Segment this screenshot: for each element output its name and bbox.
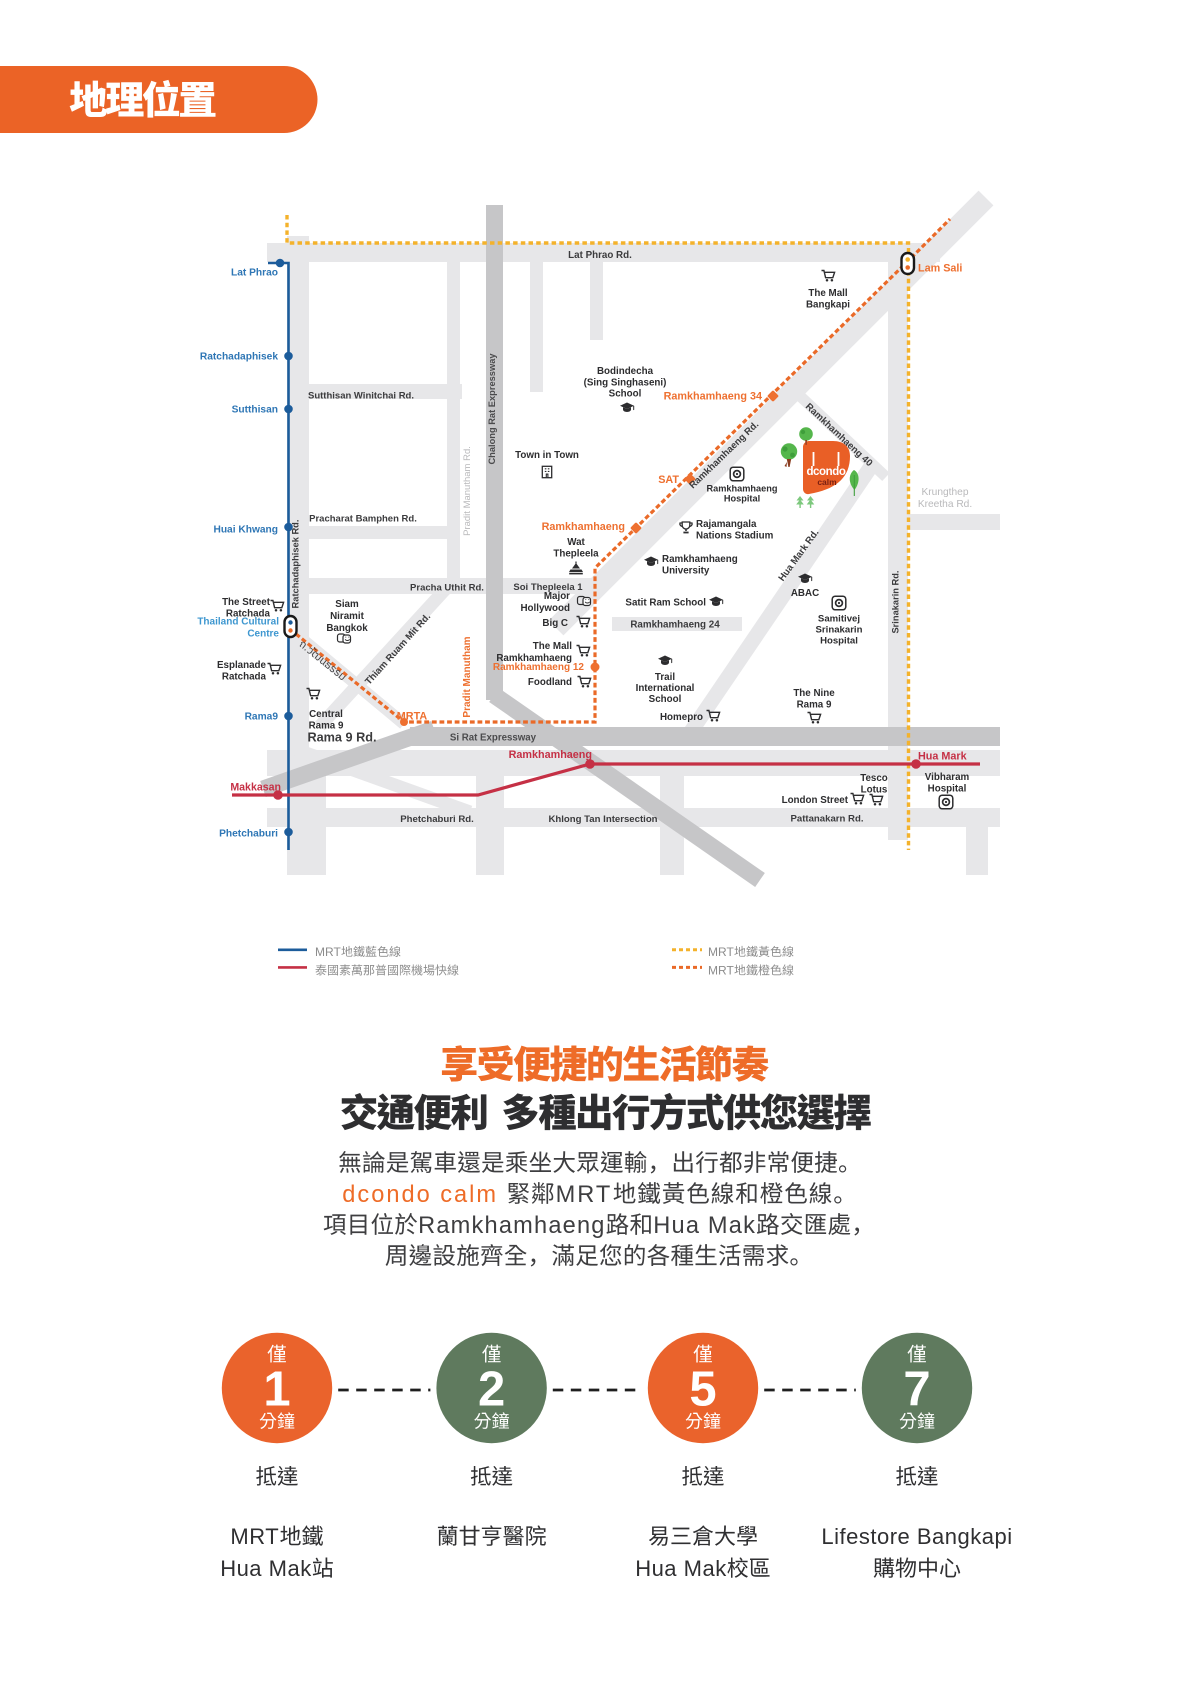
svg-text:London Street: London Street — [782, 795, 849, 806]
svg-text:Khlong Tan Intersection: Khlong Tan Intersection — [548, 814, 657, 825]
svg-text:Centre: Centre — [247, 629, 279, 640]
svg-text:Phetchaburi Rd.: Phetchaburi Rd. — [400, 814, 474, 825]
svg-text:Lotus: Lotus — [861, 784, 888, 795]
svg-text:Hollywood: Hollywood — [520, 603, 570, 614]
svg-text:Srinakarin Rd.: Srinakarin Rd. — [891, 570, 901, 633]
svg-text:Bangkok: Bangkok — [326, 623, 368, 634]
svg-text:School: School — [609, 389, 642, 400]
svg-text:Rama 9: Rama 9 — [797, 699, 832, 710]
svg-text:Hospital: Hospital — [724, 494, 760, 504]
svg-text:Ramkhamhaeng: Ramkhamhaeng — [509, 749, 592, 761]
svg-text:Ramkhamhaeng: Ramkhamhaeng — [542, 521, 625, 533]
svg-text:Bangkapi: Bangkapi — [806, 299, 850, 310]
svg-text:Srinakarin: Srinakarin — [816, 625, 863, 636]
svg-text:Ratchada: Ratchada — [226, 608, 271, 619]
svg-text:Phetchaburi: Phetchaburi — [219, 829, 278, 840]
svg-text:Lat Phrao: Lat Phrao — [231, 268, 278, 279]
svg-text:Satit Ram School: Satit Ram School — [625, 598, 706, 609]
svg-text:Lifestore Bangkapi: Lifestore Bangkapi — [821, 1524, 1012, 1549]
svg-text:Sutthisan: Sutthisan — [232, 405, 278, 416]
svg-text:Hua Mak: Hua Mak — [220, 1556, 312, 1581]
svg-text:Siam: Siam — [335, 599, 359, 610]
svg-text:Niramit: Niramit — [330, 611, 364, 622]
svg-text:Ramkhamhaeng: Ramkhamhaeng — [662, 554, 738, 565]
svg-text:(Sing Singhaseni): (Sing Singhaseni) — [584, 377, 667, 388]
svg-text:Rama 9: Rama 9 — [309, 720, 344, 731]
svg-text:MRT: MRT — [708, 945, 734, 959]
svg-text:ABAC: ABAC — [791, 588, 819, 599]
svg-text:The Mall: The Mall — [533, 641, 572, 652]
svg-text:MRTA: MRTA — [397, 711, 428, 723]
svg-text:Town in Town: Town in Town — [515, 450, 579, 461]
svg-text:Wat: Wat — [567, 537, 585, 548]
svg-text:Bodindecha: Bodindecha — [597, 366, 654, 377]
svg-text:Esplanade: Esplanade — [217, 660, 267, 671]
svg-text:MRT: MRT — [315, 945, 341, 959]
svg-text:2: 2 — [478, 1363, 505, 1417]
svg-text:Pradit Manutham Rd.: Pradit Manutham Rd. — [462, 446, 473, 536]
svg-text:Huai Khwang: Huai Khwang — [213, 525, 278, 536]
svg-text:Ramkhamhaeng 24: Ramkhamhaeng 24 — [630, 620, 720, 631]
svg-text:Big C: Big C — [542, 618, 568, 629]
svg-text:MRT: MRT — [556, 1182, 613, 1208]
svg-text:Pattanakarn Rd.: Pattanakarn Rd. — [790, 814, 863, 825]
svg-text:Hua Mak: Hua Mak — [653, 1213, 756, 1239]
svg-text:Chalong Rat Expressway: Chalong Rat Expressway — [487, 353, 497, 465]
svg-text:Hospital: Hospital — [928, 783, 967, 794]
svg-text:Sutthisan Winitchai Rd.: Sutthisan Winitchai Rd. — [308, 391, 414, 402]
svg-text:International: International — [636, 683, 695, 694]
svg-text:Ramkhamhaeng: Ramkhamhaeng — [418, 1213, 606, 1239]
svg-text:Ratchadaphisek: Ratchadaphisek — [200, 352, 278, 363]
svg-text:The Street: The Street — [222, 597, 271, 608]
svg-text:University: University — [662, 565, 710, 576]
svg-text:Si Rat Expressway: Si Rat Expressway — [450, 733, 537, 744]
svg-text:Ramkhamhaeng: Ramkhamhaeng — [707, 484, 778, 494]
svg-text:Pracha Uthit Rd.: Pracha Uthit Rd. — [410, 583, 484, 594]
svg-text:dcondo calm: dcondo calm — [342, 1182, 498, 1208]
svg-text:Homepro: Homepro — [660, 712, 703, 723]
svg-text:MRT: MRT — [708, 964, 734, 978]
svg-text:School: School — [649, 694, 682, 705]
svg-text:Central: Central — [309, 709, 343, 720]
svg-text:Ramkhamhaeng: Ramkhamhaeng — [496, 653, 572, 664]
svg-text:Hua Mark: Hua Mark — [918, 751, 968, 763]
svg-text:Ramkhamhaeng 34: Ramkhamhaeng 34 — [664, 391, 762, 403]
svg-text:Major: Major — [544, 591, 570, 602]
svg-text:7: 7 — [903, 1363, 930, 1417]
svg-text:Kreetha Rd.: Kreetha Rd. — [918, 499, 972, 510]
svg-text:Vibharam: Vibharam — [925, 772, 970, 783]
svg-text:Rajamangala: Rajamangala — [696, 519, 757, 530]
svg-text:Samitivej: Samitivej — [818, 614, 860, 625]
svg-text:Makkasan: Makkasan — [230, 782, 281, 794]
svg-text:Nations Stadium: Nations Stadium — [696, 530, 774, 541]
svg-text:Rama 9 Rd.: Rama 9 Rd. — [307, 731, 376, 745]
svg-text:Krungthep: Krungthep — [921, 487, 968, 498]
svg-text:MRT: MRT — [230, 1524, 279, 1549]
svg-text:Trail: Trail — [655, 672, 675, 683]
svg-text:SAT: SAT — [658, 474, 679, 486]
svg-text:calm: calm — [817, 477, 837, 487]
svg-text:Lat Phrao Rd.: Lat Phrao Rd. — [568, 250, 632, 261]
svg-text:Thepleela: Thepleela — [553, 548, 599, 559]
svg-text:Pracharat Bamphen Rd.: Pracharat Bamphen Rd. — [309, 514, 417, 525]
svg-text:Ratchadaphisek Rd.: Ratchadaphisek Rd. — [291, 520, 301, 609]
svg-text:Pradit Manutham: Pradit Manutham — [462, 636, 473, 717]
svg-text:Hua Mak: Hua Mak — [635, 1556, 727, 1581]
svg-text:1: 1 — [263, 1363, 290, 1417]
svg-text:5: 5 — [689, 1363, 716, 1417]
svg-text:Lam Sali: Lam Sali — [918, 263, 962, 275]
svg-text:Ratchada: Ratchada — [222, 671, 267, 682]
svg-text:The Nine: The Nine — [793, 688, 835, 699]
svg-text:Tesco: Tesco — [860, 773, 888, 784]
svg-text:Rama9: Rama9 — [245, 712, 279, 723]
svg-text:Hospital: Hospital — [820, 636, 858, 647]
svg-text:The Mall: The Mall — [808, 288, 847, 299]
svg-text:Foodland: Foodland — [528, 677, 572, 688]
